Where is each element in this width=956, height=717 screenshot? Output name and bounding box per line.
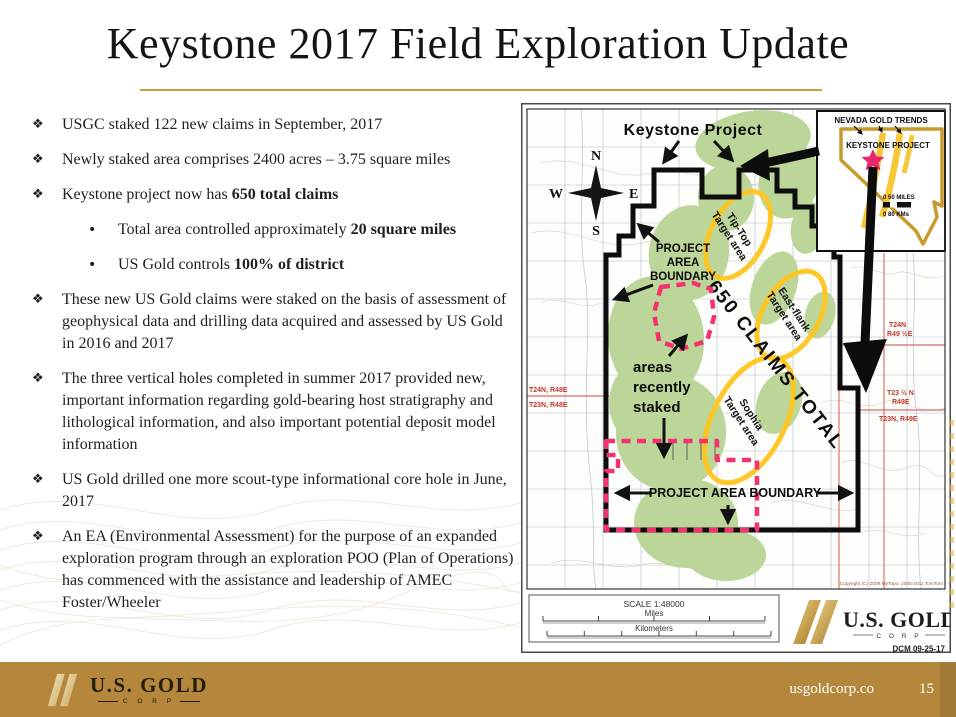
usgold-logo-footer: U.S. GOLD C O R P: [44, 669, 208, 711]
diamond-bullet-icon: ❖: [32, 289, 62, 355]
diamond-bullet-icon: ❖: [32, 149, 62, 171]
diamond-bullet-icon: ❖: [32, 526, 62, 614]
compass-e: E: [629, 187, 638, 202]
inset-scale-km: 0 80 KMs: [883, 212, 910, 218]
scale-label: SCALE 1:48000: [624, 599, 685, 609]
list-item: ❖ An EA (Environmental Assessment) for t…: [32, 526, 518, 614]
dot-bullet-icon: •: [88, 254, 118, 276]
diamond-bullet-icon: ❖: [32, 368, 62, 456]
township-label: T23N, R48E: [529, 402, 568, 409]
inset-project-label: KEYSTONE PROJECT: [846, 141, 930, 150]
footer-logo-corp: C O R P: [123, 698, 175, 705]
dot-bullet-icon: •: [88, 219, 118, 241]
boundary-label-line: AREA: [667, 257, 700, 269]
list-item: ❖ Newly staked area comprises 2400 acres…: [32, 149, 518, 171]
list-item: ❖ US Gold drilled one more scout-type in…: [32, 469, 518, 513]
footer-edge-strip: [940, 662, 956, 717]
page-title: Keystone 2017 Field Exploration Update: [0, 18, 956, 69]
inset-scale-miles: 0 50 MILES: [883, 195, 915, 201]
township-label: T24N, R48E: [529, 387, 568, 394]
bullet-list: ❖ USGC staked 122 new claims in Septembe…: [32, 114, 518, 627]
staked-label-line: staked: [633, 399, 681, 416]
map-title: Keystone Project: [624, 122, 763, 139]
usgold-logo-corp: C O R P: [876, 633, 921, 640]
compass-n: N: [591, 149, 601, 164]
boundary-label-line: PROJECT: [656, 243, 710, 255]
keystone-project-map: T24N, R48E T23N, R48E T24N R49 ½E T23 ½ …: [521, 103, 951, 653]
boundary-label-line: BOUNDARY: [650, 271, 716, 283]
township-label: T23 ½ N: [887, 389, 914, 397]
usgold-logo-name: U.S. GOLD: [843, 607, 951, 632]
sub-list-item: • US Gold controls 100% of district: [88, 254, 518, 276]
list-item: ❖ Keystone project now has 650 total cla…: [32, 184, 518, 206]
township-label: T24N: [889, 322, 906, 329]
list-item: ❖ These new US Gold claims were staked o…: [32, 289, 518, 355]
compass-s: S: [592, 224, 600, 239]
compass-w: W: [549, 187, 563, 202]
list-item: ❖ The three vertical holes completed in …: [32, 368, 518, 456]
inset-frame: [817, 111, 945, 251]
nevada-inset: NEVADA GOLD TRENDS KEYSTONE PROJECT 0 50…: [817, 111, 945, 251]
inset-title: NEVADA GOLD TRENDS: [834, 116, 928, 125]
staked-label-line: recently: [633, 379, 691, 396]
list-item: ❖ USGC staked 122 new claims in Septembe…: [32, 114, 518, 136]
kilometers-label: Kilometers: [635, 624, 673, 633]
township-label: R49 ½E: [887, 330, 913, 338]
website-link[interactable]: usgoldcorp.co: [789, 681, 874, 698]
footer-bar: U.S. GOLD C O R P usgoldcorp.co 15: [0, 662, 956, 717]
logo-dash: [98, 701, 118, 702]
diamond-bullet-icon: ❖: [32, 469, 62, 513]
logo-dash: [180, 701, 200, 702]
title-underline: [140, 89, 822, 91]
scalebar-box: SCALE 1:48000 Miles Kilometers: [529, 595, 779, 642]
sub-list-item: • Total area controlled approximately 20…: [88, 219, 518, 241]
gold-chevrons-icon: [44, 669, 80, 711]
page-number: 15: [919, 681, 934, 698]
boundary-label-lower: PROJECT AREA BOUNDARY: [649, 486, 822, 500]
staked-label-line: areas: [633, 359, 672, 376]
township-label: R49E: [892, 399, 910, 406]
township-label: T23N, R49E: [879, 416, 918, 423]
map-copyright: Copyright (C) 2009 MyTopo, 2005-2011 Tom…: [840, 581, 943, 587]
inset-scale-bar-notch: [890, 202, 897, 208]
diamond-bullet-icon: ❖: [32, 114, 62, 136]
footer-logo-name: U.S. GOLD: [90, 675, 208, 696]
diamond-bullet-icon: ❖: [32, 184, 62, 206]
edge-watermark-strip: [949, 420, 954, 615]
